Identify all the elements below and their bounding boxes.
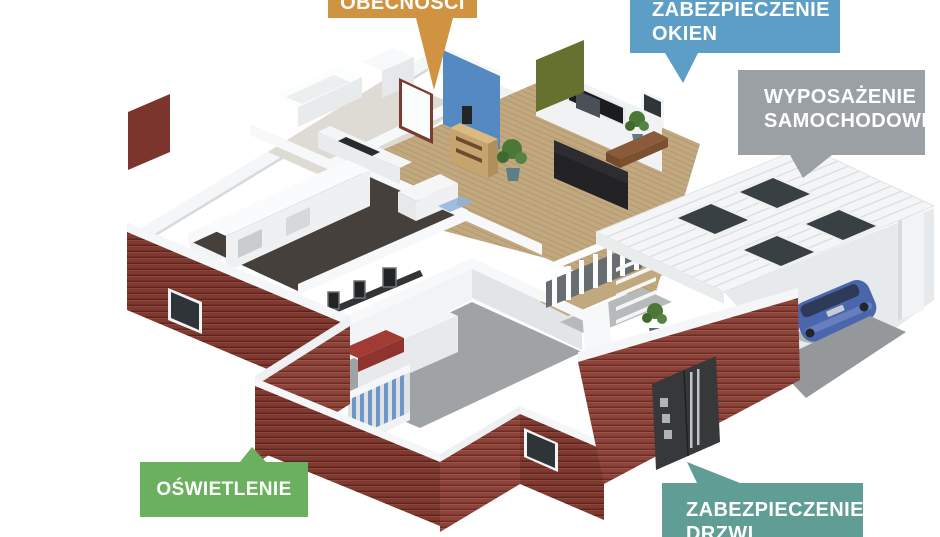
callout-car-equipment-line2: SAMOCHODOWE: [738, 109, 925, 133]
red-accent-wall: [128, 94, 170, 170]
door-window: [664, 430, 672, 439]
car-wheel: [806, 329, 815, 338]
speaker: [462, 106, 472, 124]
callout-window-protection-line2: OKIEN: [630, 22, 840, 46]
door-handle: [697, 369, 700, 445]
callout-door-protection-line2: DRZWI: [662, 522, 863, 537]
picture-frame: [328, 292, 339, 309]
callout-door-protection: ZABEZPIECZENIE DRZWI: [662, 483, 863, 537]
callout-pointer-up-left: [687, 462, 747, 483]
callout-window-protection-line1: ZABEZPIECZENIE: [630, 0, 840, 22]
callout-pointer-down: [665, 53, 705, 83]
callout-pointer-down: [788, 155, 833, 179]
callout-lighting-label: OŚWIETLENIE: [156, 478, 291, 502]
car-wheel: [860, 303, 869, 312]
callout-car-equipment-line1: WYPOSAŻENIE: [738, 70, 925, 109]
callout-car-equipment: WYPOSAŻENIE SAMOCHODOWE: [738, 70, 925, 155]
callout-window-protection: ZABEZPIECZENIE OKIEN: [630, 0, 840, 53]
smart-home-infographic: OBECNOŚCI ZABEZPIECZENIE OKIEN WYPOSAŻEN…: [0, 0, 940, 537]
callout-lighting: OŚWIETLENIE: [140, 462, 308, 517]
picture-frame: [354, 281, 365, 298]
carport-pillar: [902, 207, 924, 319]
callout-pointer-up: [237, 447, 269, 462]
callout-presence-simulation: OBECNOŚCI: [328, 0, 477, 18]
callout-presence-simulation-label: OBECNOŚCI: [340, 0, 465, 18]
callout-pointer-down: [410, 18, 454, 92]
door-window: [662, 414, 670, 423]
callout-door-protection-line1: ZABEZPIECZENIE: [662, 483, 863, 522]
door-window: [660, 398, 668, 407]
door-handle: [690, 372, 693, 448]
picture-frame: [383, 268, 396, 287]
